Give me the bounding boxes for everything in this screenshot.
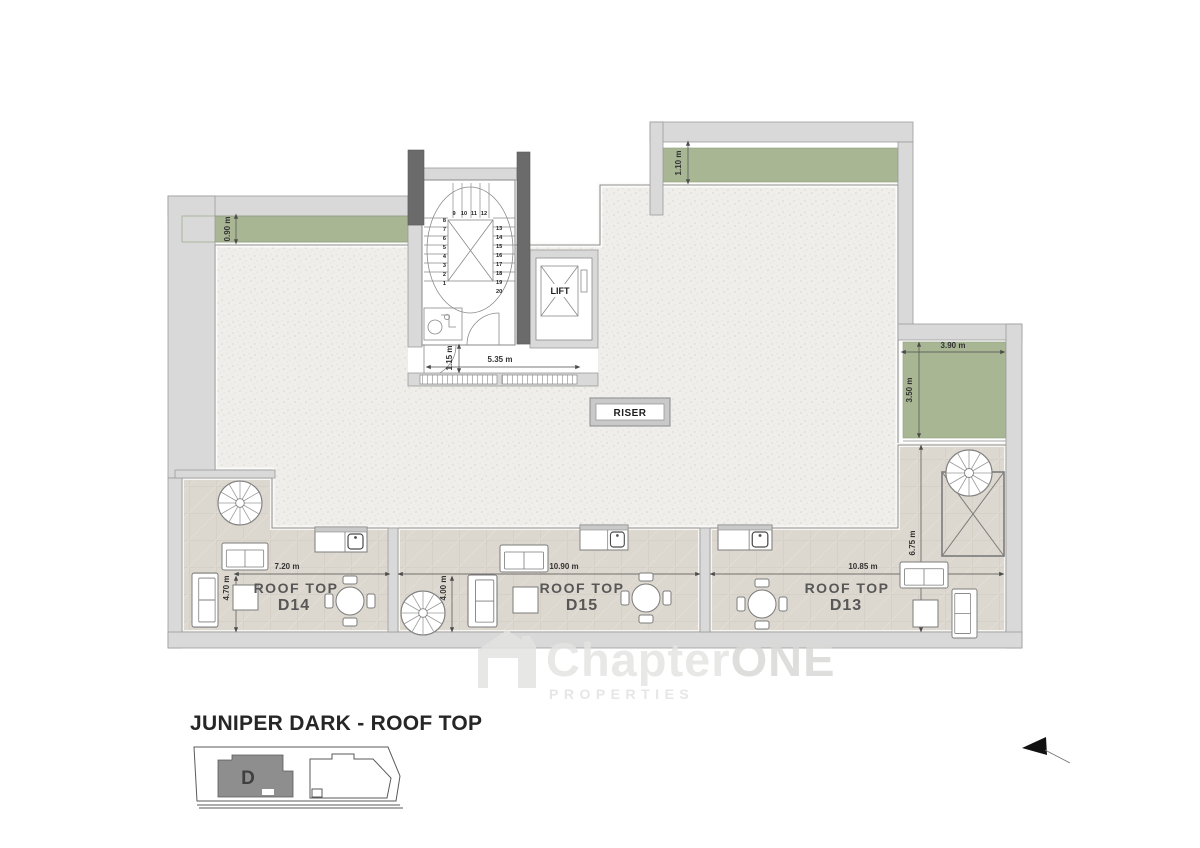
spiral-stair-icon-d14 — [218, 481, 262, 525]
svg-text:20: 20 — [496, 289, 502, 295]
dim-d13-depth: 6.75 m — [908, 531, 917, 556]
watermark-tagline: PROPERTIES — [549, 686, 694, 702]
svg-text:13: 13 — [496, 226, 502, 232]
planter-right — [903, 342, 1006, 438]
lift: LIFT — [536, 258, 592, 340]
svg-text:12: 12 — [481, 211, 487, 217]
sofa-icon-d13-right — [952, 589, 977, 638]
sofa-icon-d13-top — [900, 562, 948, 588]
side-table-icon-d15 — [513, 587, 538, 613]
dim-d14-depth: 4.70 m — [222, 576, 231, 601]
sofa-icon-d14-top — [222, 543, 268, 570]
svg-text:6: 6 — [443, 236, 446, 242]
lift-label: LIFT — [551, 286, 570, 296]
svg-text:14: 14 — [496, 235, 503, 241]
svg-text:3: 3 — [443, 263, 446, 269]
spiral-stair-icon-d13 — [946, 450, 992, 496]
dim-core-door: 1.15 m — [445, 346, 454, 371]
svg-text:17: 17 — [496, 262, 502, 268]
louvre-left — [420, 375, 497, 384]
stair-core: 8 7 6 5 4 3 2 1 9 10 11 12 13 14 15 16 1… — [408, 150, 598, 386]
keyplan-block-d-label: D — [241, 768, 255, 789]
svg-text:11: 11 — [471, 211, 477, 217]
terrace-d15-label: ROOF TOP — [540, 580, 625, 596]
partition-d15-d13 — [700, 528, 710, 632]
plan-title: JUNIPER DARK - ROOF TOP — [190, 712, 482, 735]
keyplan: D — [194, 747, 403, 808]
dim-d13-width: 10.85 m — [848, 562, 877, 571]
svg-text:15: 15 — [496, 244, 502, 250]
riser-badge: RISER — [590, 398, 670, 426]
planter-top-left — [182, 216, 408, 242]
svg-text:2: 2 — [443, 272, 446, 278]
sofa-icon-d14-left — [192, 573, 218, 627]
terrace-d14-unit: D14 — [278, 597, 310, 614]
louvre-right — [502, 375, 577, 384]
terrace-d13-unit: D13 — [830, 597, 862, 614]
dim-d15-depth: 4.00 m — [439, 576, 448, 601]
side-table-icon-d13 — [913, 600, 938, 627]
dim-d14-width: 7.20 m — [275, 562, 300, 571]
svg-text:10: 10 — [461, 211, 467, 217]
floor-plan-page: 8 7 6 5 4 3 2 1 9 10 11 12 13 14 15 16 1… — [0, 0, 1200, 848]
terrace-d13-label: ROOF TOP — [805, 580, 890, 596]
riser-label: RISER — [613, 408, 646, 419]
dim-planter-right-width: 3.90 m — [941, 341, 966, 350]
counter-sink-icon-d13 — [718, 525, 772, 550]
svg-text:19: 19 — [496, 280, 502, 286]
dim-planter-top-right: 1.10 m — [674, 151, 683, 176]
terrace-d14-label: ROOF TOP — [254, 580, 339, 596]
partition-d14-d15 — [388, 528, 398, 632]
sofa-icon-d15-top — [500, 545, 548, 572]
dim-core-width: 5.35 m — [488, 355, 513, 364]
counter-sink-icon-d14 — [315, 527, 367, 552]
floor-plan-drawing: 8 7 6 5 4 3 2 1 9 10 11 12 13 14 15 16 1… — [0, 0, 1200, 848]
keyplan-block-d — [218, 755, 293, 797]
svg-text:16: 16 — [496, 253, 502, 259]
svg-text:9: 9 — [452, 211, 455, 217]
sofa-icon-d15-left — [468, 575, 497, 627]
watermark-brand: ChapterONE — [546, 633, 835, 686]
dim-d15-width: 10.90 m — [549, 562, 578, 571]
core-wall-stub-left — [408, 150, 424, 225]
core-wall-stub-right — [517, 152, 530, 344]
svg-text:7: 7 — [443, 227, 446, 233]
counter-sink-icon-d15 — [580, 525, 628, 550]
svg-text:18: 18 — [496, 271, 502, 277]
planter-top-right — [663, 148, 898, 182]
dim-planter-top-left: 0.90 m — [223, 217, 232, 242]
north-arrow-icon — [1022, 737, 1070, 763]
dim-planter-right-height: 3.50 m — [905, 378, 914, 403]
watermark: ChapterONE PROPERTIES — [478, 630, 835, 702]
svg-text:1: 1 — [443, 281, 446, 287]
svg-text:5: 5 — [443, 245, 446, 251]
svg-text:8: 8 — [443, 218, 446, 224]
terrace-d15-unit: D15 — [566, 597, 598, 614]
